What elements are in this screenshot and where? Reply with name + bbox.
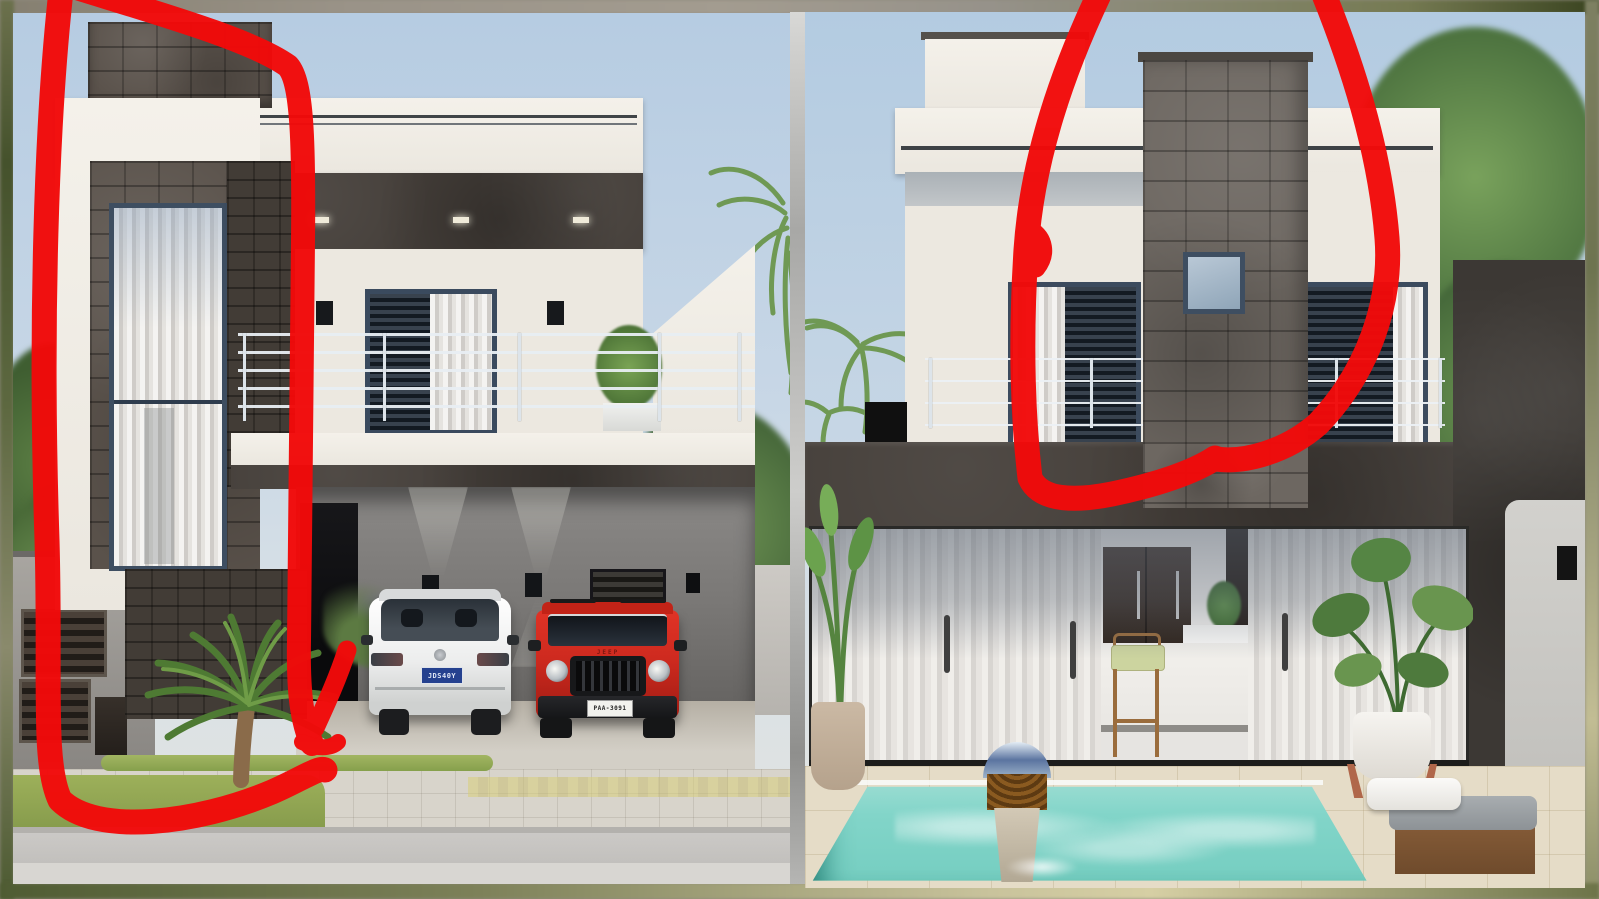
front-render-panel: JDS40Y JEEP PAA-3091 [13, 13, 790, 884]
headlight [546, 660, 568, 682]
stool-leg [1155, 669, 1159, 757]
railing-post [1335, 358, 1338, 428]
window-shadow-panel [144, 408, 174, 564]
monstera-plant [1303, 520, 1473, 740]
louver-vent [21, 609, 107, 677]
tail-light [371, 653, 403, 666]
annotated-render-collage: JDS40Y JEEP PAA-3091 [0, 0, 1599, 899]
roof-rail [620, 599, 666, 603]
balcony-parapet [231, 433, 755, 465]
railing-post [738, 333, 741, 421]
waterfall-wicker-band [987, 774, 1047, 810]
bird-of-paradise-plant [805, 482, 889, 722]
railing-post [1090, 358, 1093, 428]
wheel [379, 709, 409, 735]
headrest [455, 609, 477, 627]
folded-towel [1367, 778, 1461, 810]
tall-window [109, 203, 227, 571]
roof-rail [550, 599, 596, 603]
car-logo [434, 649, 446, 661]
wheel [540, 718, 572, 738]
jeep-windshield [548, 614, 667, 646]
stool-leg [1113, 669, 1117, 757]
wheel [471, 709, 501, 735]
stool-crossbar [1113, 719, 1159, 723]
stone-chimney-base [1143, 442, 1308, 508]
carport-speaker [686, 573, 700, 593]
water-splash [1005, 856, 1079, 878]
white-car: JDS40Y [365, 575, 515, 738]
wheel [643, 718, 675, 738]
panel-divider [790, 12, 805, 884]
side-mirror [674, 640, 687, 651]
roof-flue-box [865, 402, 907, 444]
recessed-light [573, 217, 589, 223]
monstera-pot [1353, 712, 1431, 780]
jeep-grille [570, 656, 646, 696]
carport-sconce [525, 573, 542, 597]
outdoor-unit-wall [1505, 500, 1585, 782]
railing-post [383, 333, 386, 421]
license-plate: JDS40Y [421, 667, 463, 684]
chimney-window [1183, 252, 1245, 314]
tail-light [477, 653, 509, 666]
recessed-light [313, 217, 329, 223]
railing-post [1439, 358, 1442, 428]
side-mirror [507, 635, 519, 645]
frame-left-border [0, 0, 14, 899]
balcony-railing [238, 333, 755, 421]
sconce-uplight-cone [511, 487, 571, 579]
wall-sconce [316, 301, 333, 325]
pool-waterline-coping [853, 780, 1323, 785]
street [13, 833, 790, 863]
headlight [648, 660, 670, 682]
railing-post [658, 333, 661, 421]
recessed-shadow-band [905, 172, 1150, 206]
baseboard-line [1101, 725, 1248, 732]
wall-sconce [547, 301, 564, 325]
car-rear-window [381, 599, 499, 641]
outdoor-unit-vent [1557, 546, 1577, 580]
red-jeep: JEEP PAA-3091 [530, 596, 685, 740]
window-mullion [114, 400, 222, 404]
stone-column-cap [88, 22, 272, 108]
railing-post [929, 358, 932, 428]
street-apron [13, 863, 790, 884]
headrest [401, 609, 423, 627]
bumper-crease [375, 687, 505, 690]
grille-slots [576, 661, 640, 691]
water-ripples [895, 806, 1315, 876]
window-glass-reflection [114, 208, 222, 328]
sago-palm [123, 565, 363, 793]
rear-render-panel [805, 12, 1585, 888]
plant-pot [811, 702, 865, 790]
side-mirror [361, 635, 373, 645]
jeep-license-plate: PAA-3091 [587, 700, 633, 717]
side-mirror [528, 640, 541, 651]
louver-vent [19, 679, 91, 743]
railing-post [518, 333, 521, 421]
door-handle [944, 615, 950, 673]
jeep-roof [542, 602, 673, 614]
balcony-slab-edge [231, 465, 755, 489]
penthouse-volume [925, 39, 1085, 113]
recessed-light [453, 217, 469, 223]
kitchen-floor [1101, 732, 1248, 761]
tactile-paving-strip [468, 777, 790, 797]
door-handle [1070, 621, 1076, 679]
door-handle [1282, 613, 1288, 671]
frame-right-border [1585, 0, 1599, 899]
railing-post [243, 333, 246, 421]
